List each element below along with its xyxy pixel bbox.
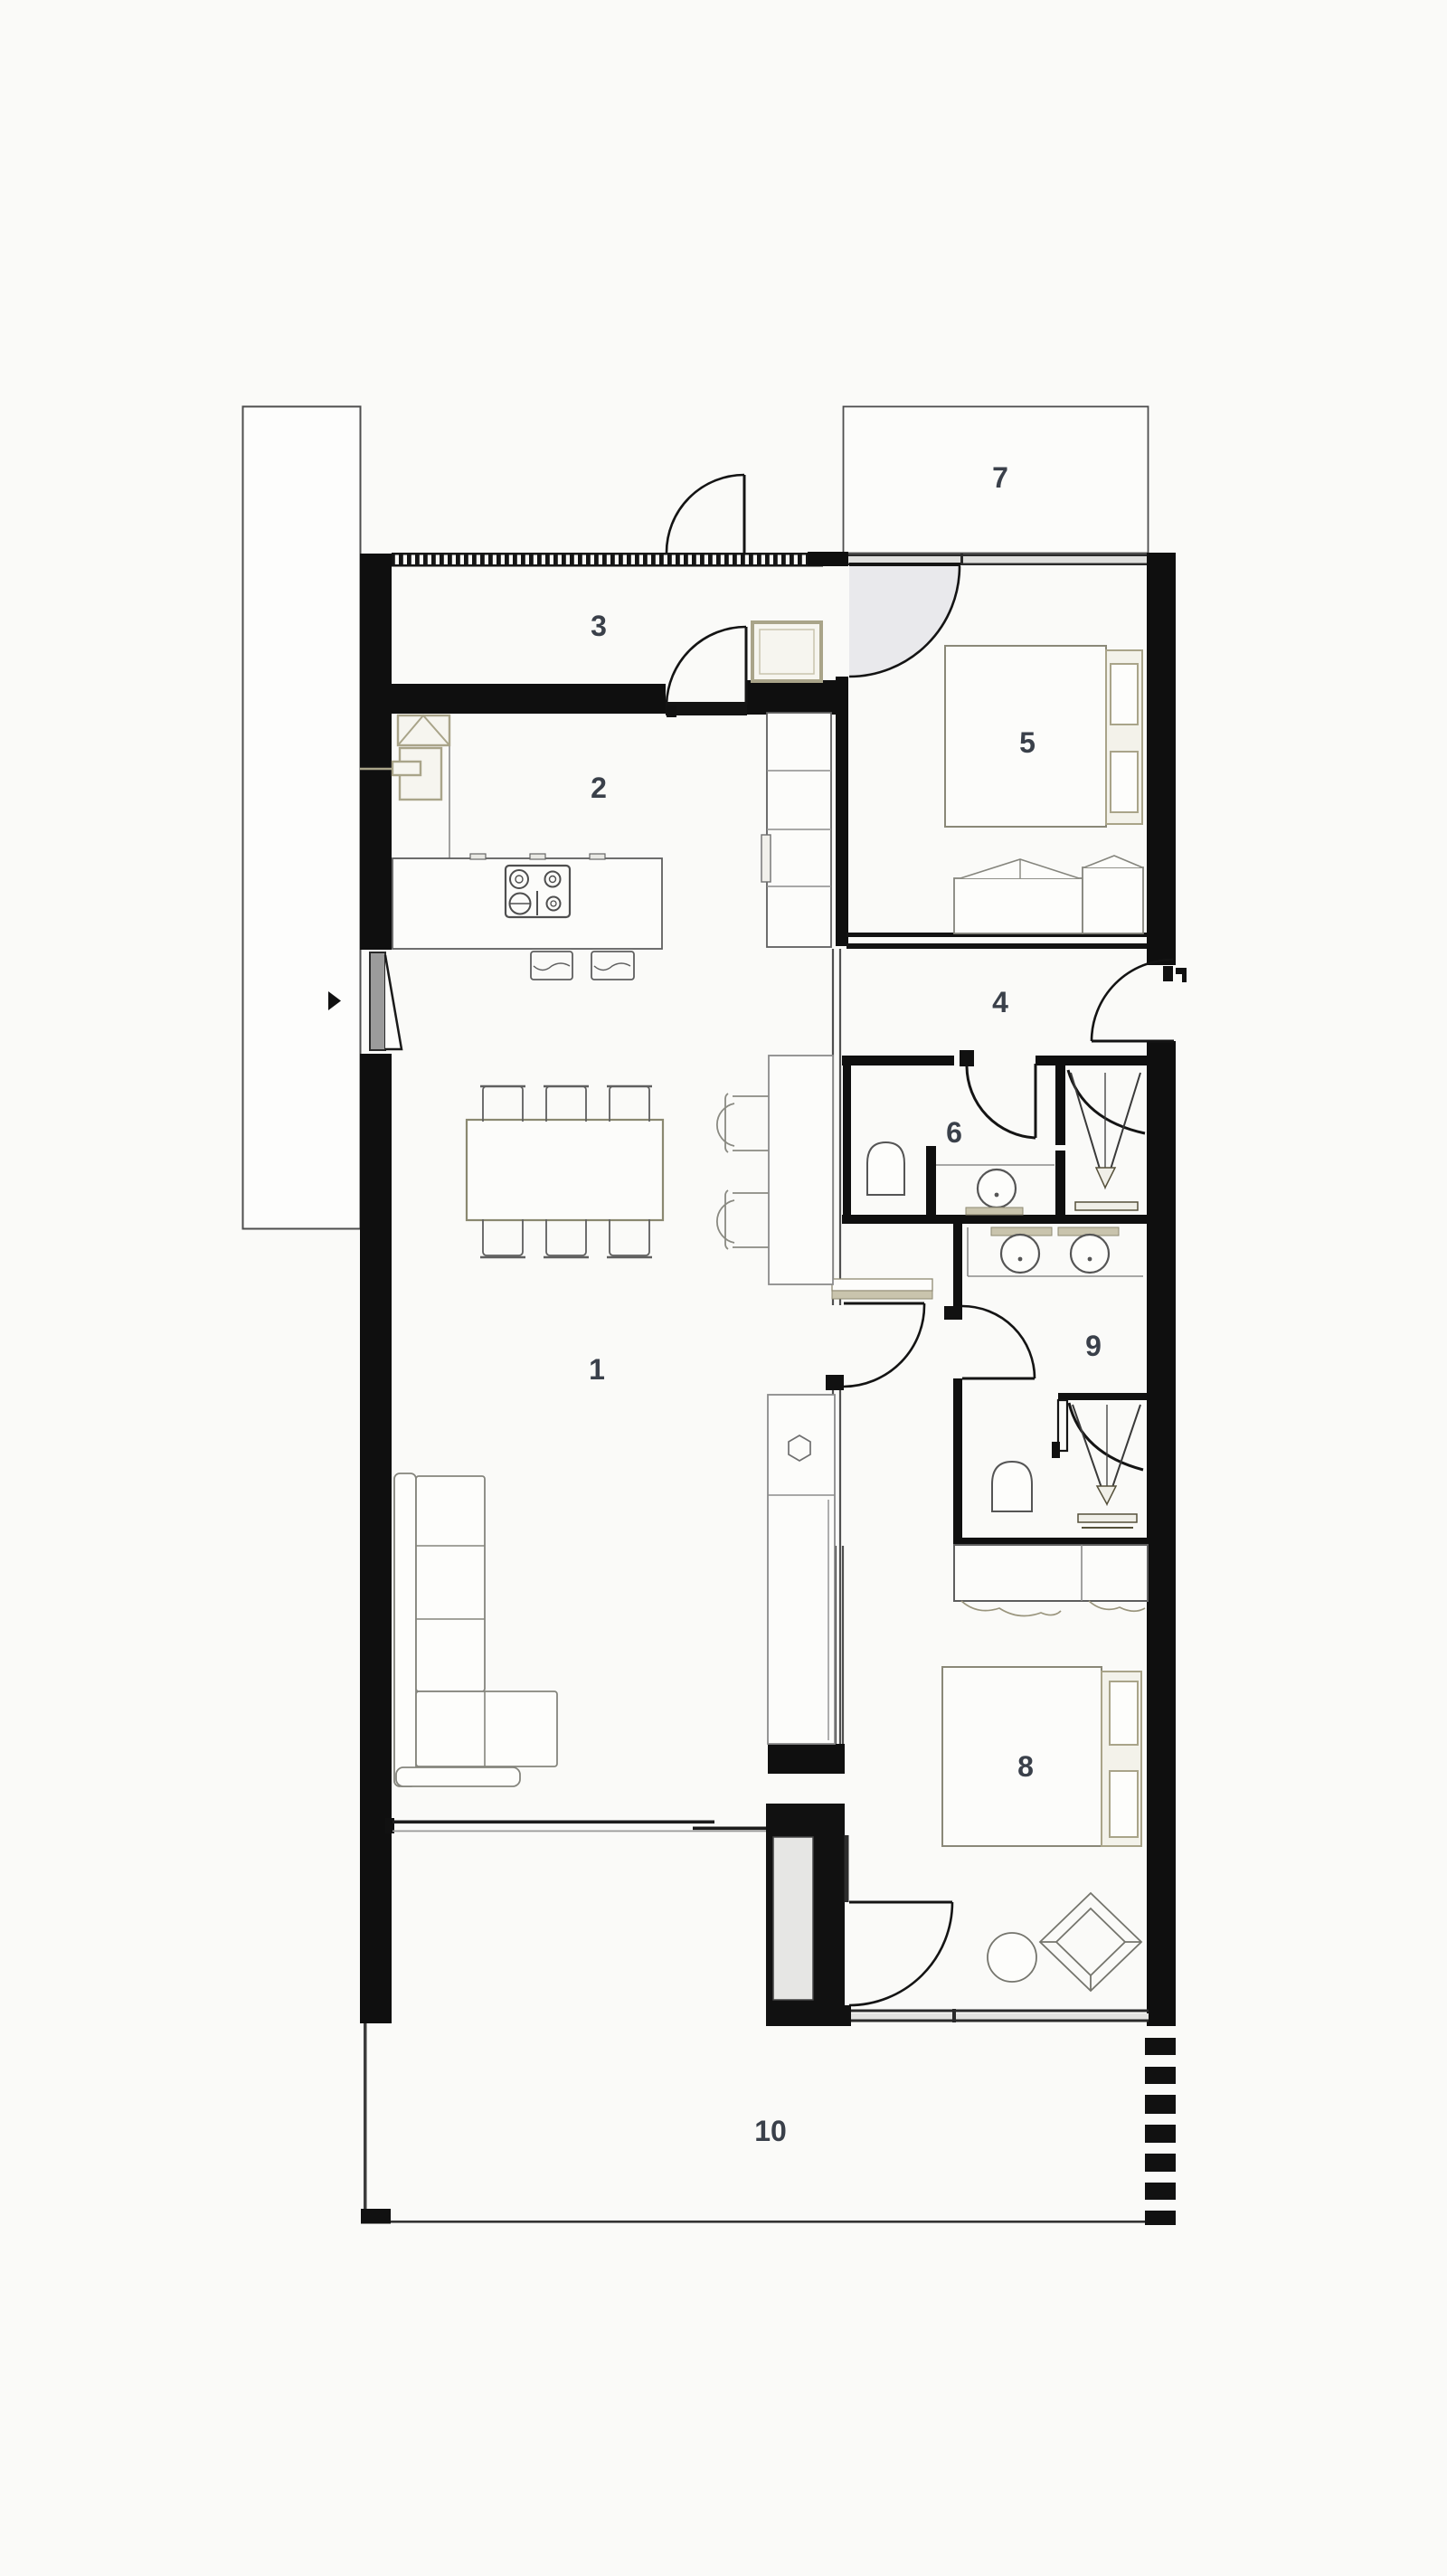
svg-text:10: 10: [754, 2115, 787, 2147]
svg-text:1: 1: [589, 1353, 605, 1386]
svg-text:5: 5: [1019, 726, 1036, 759]
svg-text:4: 4: [992, 986, 1008, 1018]
svg-text:3: 3: [591, 610, 607, 642]
svg-text:8: 8: [1017, 1750, 1034, 1783]
svg-text:6: 6: [946, 1116, 962, 1149]
svg-text:9: 9: [1085, 1330, 1102, 1362]
svg-text:2: 2: [591, 772, 607, 804]
svg-text:7: 7: [992, 461, 1008, 494]
